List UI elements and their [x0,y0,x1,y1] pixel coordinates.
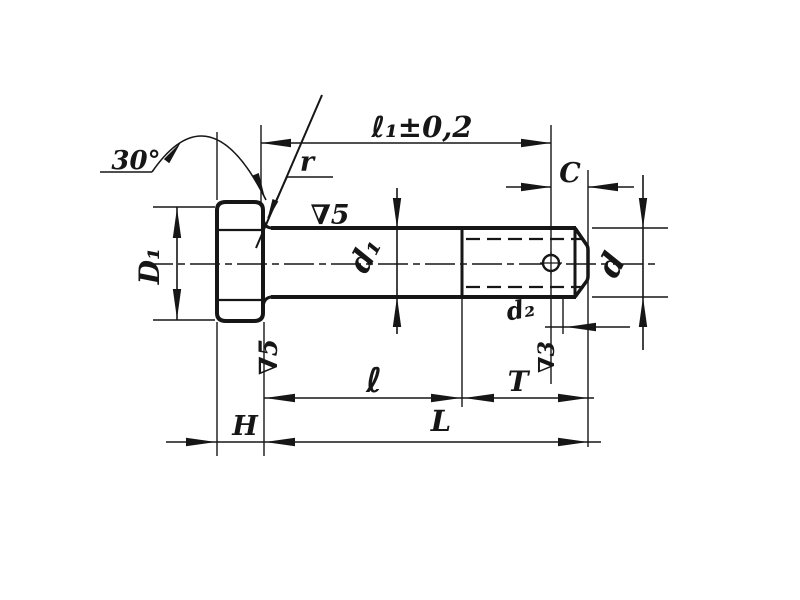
dim-thread-length-label: T [508,365,531,398]
dim-head-height-label: H [231,411,259,442]
hex-head [217,202,263,321]
surface-finish-5-top-mark: ∇5 [310,200,349,231]
dim-head-chamfer-angle-label: 30° [111,146,160,176]
dim-shank-diameter-label: d₁ [342,232,389,279]
dim-end-chamfer-label: C [559,158,581,189]
dim-fillet-radius-label: r [300,147,316,178]
extension-lines [143,125,668,456]
dim-shank-length-label: ℓ [365,361,382,401]
dim-hole-diameter-label: d₂ [504,293,537,327]
surface-finish-3-thread-mark: ∇3 [534,341,560,373]
surface-finish-5-side-mark: ∇5 [254,339,283,375]
dim-total-length-label: L [430,404,451,438]
dim-hole-position-length-label: ℓ₁±0,2 [370,110,472,144]
dim-end-diameter-label: d [589,246,633,284]
bolt-technical-drawing: 30° r ℓ₁±0,2 C ∇5 D₁ d₁ d d₂ ∇5 ∇3 ℓ T H… [0,0,800,600]
drawing-sheet: 30° r ℓ₁±0,2 C ∇5 D₁ d₁ d d₂ ∇5 ∇3 ℓ T H… [0,0,800,600]
dim-head-diameter-label: D₁ [133,248,166,286]
